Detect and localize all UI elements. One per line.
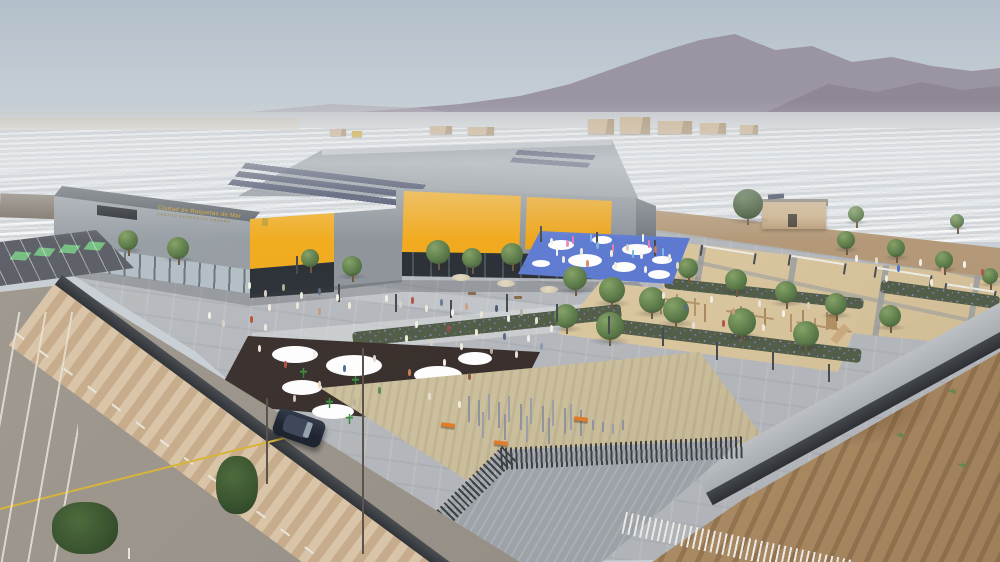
street-lamp xyxy=(266,398,268,484)
tree xyxy=(167,237,189,259)
distant-building xyxy=(620,117,650,134)
lane-dashes-vertical xyxy=(128,548,130,562)
light-pole xyxy=(338,284,340,302)
cafe-table xyxy=(514,296,522,299)
distant-building xyxy=(588,119,614,134)
distant-building xyxy=(700,123,726,134)
tree xyxy=(935,251,953,269)
city-emblem-icon xyxy=(262,218,269,227)
water-jet-pole xyxy=(642,234,644,242)
distant-building xyxy=(740,125,758,134)
calisthenics-posts xyxy=(592,420,594,430)
tree xyxy=(950,214,964,228)
crowd-outdoor-gym xyxy=(258,345,261,352)
tree xyxy=(775,281,797,303)
light-pole xyxy=(296,256,298,274)
distant-building xyxy=(658,121,692,134)
light-pole xyxy=(556,304,558,322)
light-pole xyxy=(540,226,542,242)
water-jet-pole xyxy=(590,234,592,242)
gym-circle xyxy=(272,346,318,363)
gym-circle xyxy=(326,355,382,376)
tree xyxy=(462,248,482,268)
calisthenics-bars xyxy=(468,396,470,422)
light-pole xyxy=(716,342,718,360)
light-pole xyxy=(662,328,664,346)
splash-circle xyxy=(648,270,670,279)
crowd-sand-courts xyxy=(855,255,858,262)
cafe-table xyxy=(468,292,476,295)
splash-circle xyxy=(652,256,672,264)
tree xyxy=(663,297,689,323)
light-pole xyxy=(828,364,830,382)
water-jet-pole xyxy=(556,248,558,256)
cafe-umbrella xyxy=(452,274,470,281)
crowd-splash-pad xyxy=(550,238,553,245)
light-pole xyxy=(450,300,452,318)
tree xyxy=(728,308,756,336)
light-pole xyxy=(654,240,656,256)
gym-circle xyxy=(282,380,322,395)
tree xyxy=(793,321,819,347)
water-jet-pole xyxy=(572,236,574,244)
water-jet-pole xyxy=(662,248,664,256)
tree xyxy=(725,269,747,291)
architectural-rendering: Ciudad de Roquetas de Mar CENTRO DEPORTI… xyxy=(0,0,1000,562)
water-jet-pole xyxy=(632,250,634,258)
splash-circle xyxy=(612,262,636,272)
light-pole xyxy=(395,294,397,312)
splash-circle xyxy=(532,260,550,267)
gym-circle xyxy=(312,404,354,419)
tree xyxy=(599,277,625,303)
tree xyxy=(301,249,319,267)
light-pole xyxy=(608,316,610,334)
tree xyxy=(639,287,665,313)
cafe-umbrella xyxy=(497,280,515,287)
tree xyxy=(342,256,362,276)
tree xyxy=(879,305,901,327)
tree xyxy=(118,230,138,250)
light-pole xyxy=(506,294,508,312)
tree xyxy=(848,206,864,222)
gym-circle xyxy=(458,352,492,365)
tree xyxy=(426,240,450,264)
distant-building xyxy=(430,126,452,134)
tree xyxy=(501,243,523,265)
tree xyxy=(825,293,847,315)
distant-yellow-building xyxy=(352,131,362,137)
crowd-building-front xyxy=(248,282,251,289)
crowd-plaza xyxy=(385,295,388,302)
distant-building xyxy=(468,127,494,135)
tree xyxy=(678,258,698,278)
crowd-playground xyxy=(662,292,665,299)
light-pole xyxy=(596,232,598,248)
tree xyxy=(837,231,855,249)
tree xyxy=(982,268,998,284)
water-jet-pole xyxy=(648,240,650,248)
farmhouse-door xyxy=(788,214,797,227)
roadside-bush xyxy=(52,502,118,554)
cyclists xyxy=(208,312,211,319)
cafe-umbrella xyxy=(540,286,558,293)
distant-building xyxy=(330,129,346,136)
roadside-bush xyxy=(216,456,258,514)
water-jet-pole xyxy=(612,244,614,252)
large-background-tree xyxy=(733,189,763,219)
tree xyxy=(887,239,905,257)
tree xyxy=(563,266,587,290)
tree xyxy=(596,312,624,340)
distant-town xyxy=(0,118,300,130)
light-pole xyxy=(772,352,774,370)
street-lamp xyxy=(362,348,364,554)
splash-circle xyxy=(592,236,612,244)
